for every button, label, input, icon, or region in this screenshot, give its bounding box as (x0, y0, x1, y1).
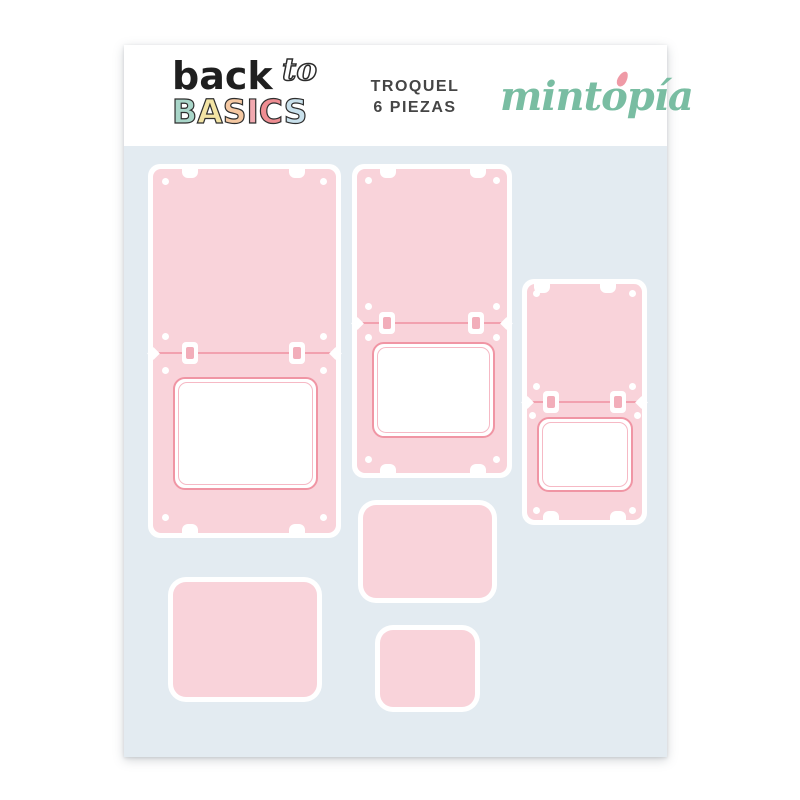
hole-icon (162, 367, 169, 374)
die-fill (173, 582, 317, 697)
hole-icon (629, 507, 636, 514)
logo-letter: B (172, 92, 197, 131)
product-image: back to BASICS TROQUEL 6 PIEZAS mintopía (0, 0, 800, 800)
hole-icon (493, 334, 500, 341)
logo-letter: S (284, 92, 308, 131)
hole-icon (493, 177, 500, 184)
hole-icon (162, 514, 169, 521)
die-piece-rounded-card-medium (358, 500, 497, 603)
hole-icon (320, 367, 327, 374)
logo-word-to: to (282, 53, 317, 87)
brand-logo: mintopía (500, 69, 670, 129)
hole-icon (162, 333, 169, 340)
hole-icon (533, 290, 540, 297)
product-title: TROQUEL 6 PIEZAS (340, 77, 490, 117)
notch-icon (182, 524, 198, 538)
closure-tab (379, 312, 395, 334)
die-fill (380, 630, 475, 707)
logo-letter: S (223, 92, 247, 131)
hole-icon (629, 383, 636, 390)
hole-icon (320, 178, 327, 185)
closure-tab (610, 391, 626, 413)
product-title-line1: TROQUEL (340, 77, 490, 96)
die-piece-rounded-card-large (168, 577, 322, 702)
logo-letter: I (246, 92, 258, 131)
die-mat (124, 146, 667, 757)
hole-icon (629, 290, 636, 297)
notch-icon (610, 511, 626, 525)
notch-icon (380, 164, 396, 178)
logo-word-back: back (172, 57, 273, 95)
notch-icon (289, 164, 305, 178)
packaging-sheet: back to BASICS TROQUEL 6 PIEZAS mintopía (124, 45, 667, 757)
die-window (372, 342, 495, 438)
die-window (173, 377, 318, 490)
hole-icon (365, 456, 372, 463)
hole-icon (529, 412, 536, 419)
hole-icon (493, 303, 500, 310)
closure-tab (182, 342, 198, 364)
logo-letter: A (197, 92, 223, 131)
closure-tab (468, 312, 484, 334)
back-to-basics-logo: back to BASICS (172, 57, 342, 139)
notch-icon (470, 464, 486, 478)
notch-icon (380, 464, 396, 478)
hole-icon (533, 383, 540, 390)
hole-icon (493, 456, 500, 463)
notch-icon (289, 524, 305, 538)
die-piece-flip-card-large (148, 164, 341, 538)
die-fill (363, 505, 492, 598)
hole-icon (320, 333, 327, 340)
logo-letter: C (259, 92, 284, 131)
closure-tab (543, 391, 559, 413)
hole-icon (365, 303, 372, 310)
hole-icon (533, 507, 540, 514)
die-piece-flip-card-small (522, 279, 647, 525)
hole-icon (162, 178, 169, 185)
header-band: back to BASICS TROQUEL 6 PIEZAS mintopía (124, 45, 667, 146)
closure-tab (289, 342, 305, 364)
notch-icon (543, 511, 559, 525)
product-title-line2: 6 PIEZAS (340, 98, 490, 117)
hole-icon (634, 412, 641, 419)
notch-icon (182, 164, 198, 178)
hole-icon (365, 177, 372, 184)
hole-icon (365, 334, 372, 341)
die-piece-rounded-card-small (375, 625, 480, 712)
logo-word-basics: BASICS (172, 94, 307, 130)
notch-icon (470, 164, 486, 178)
brand-wordmark: mintopía (500, 73, 693, 120)
hole-icon (320, 514, 327, 521)
die-piece-flip-card-medium (352, 164, 512, 478)
die-window (537, 417, 633, 492)
notch-icon (600, 279, 616, 293)
